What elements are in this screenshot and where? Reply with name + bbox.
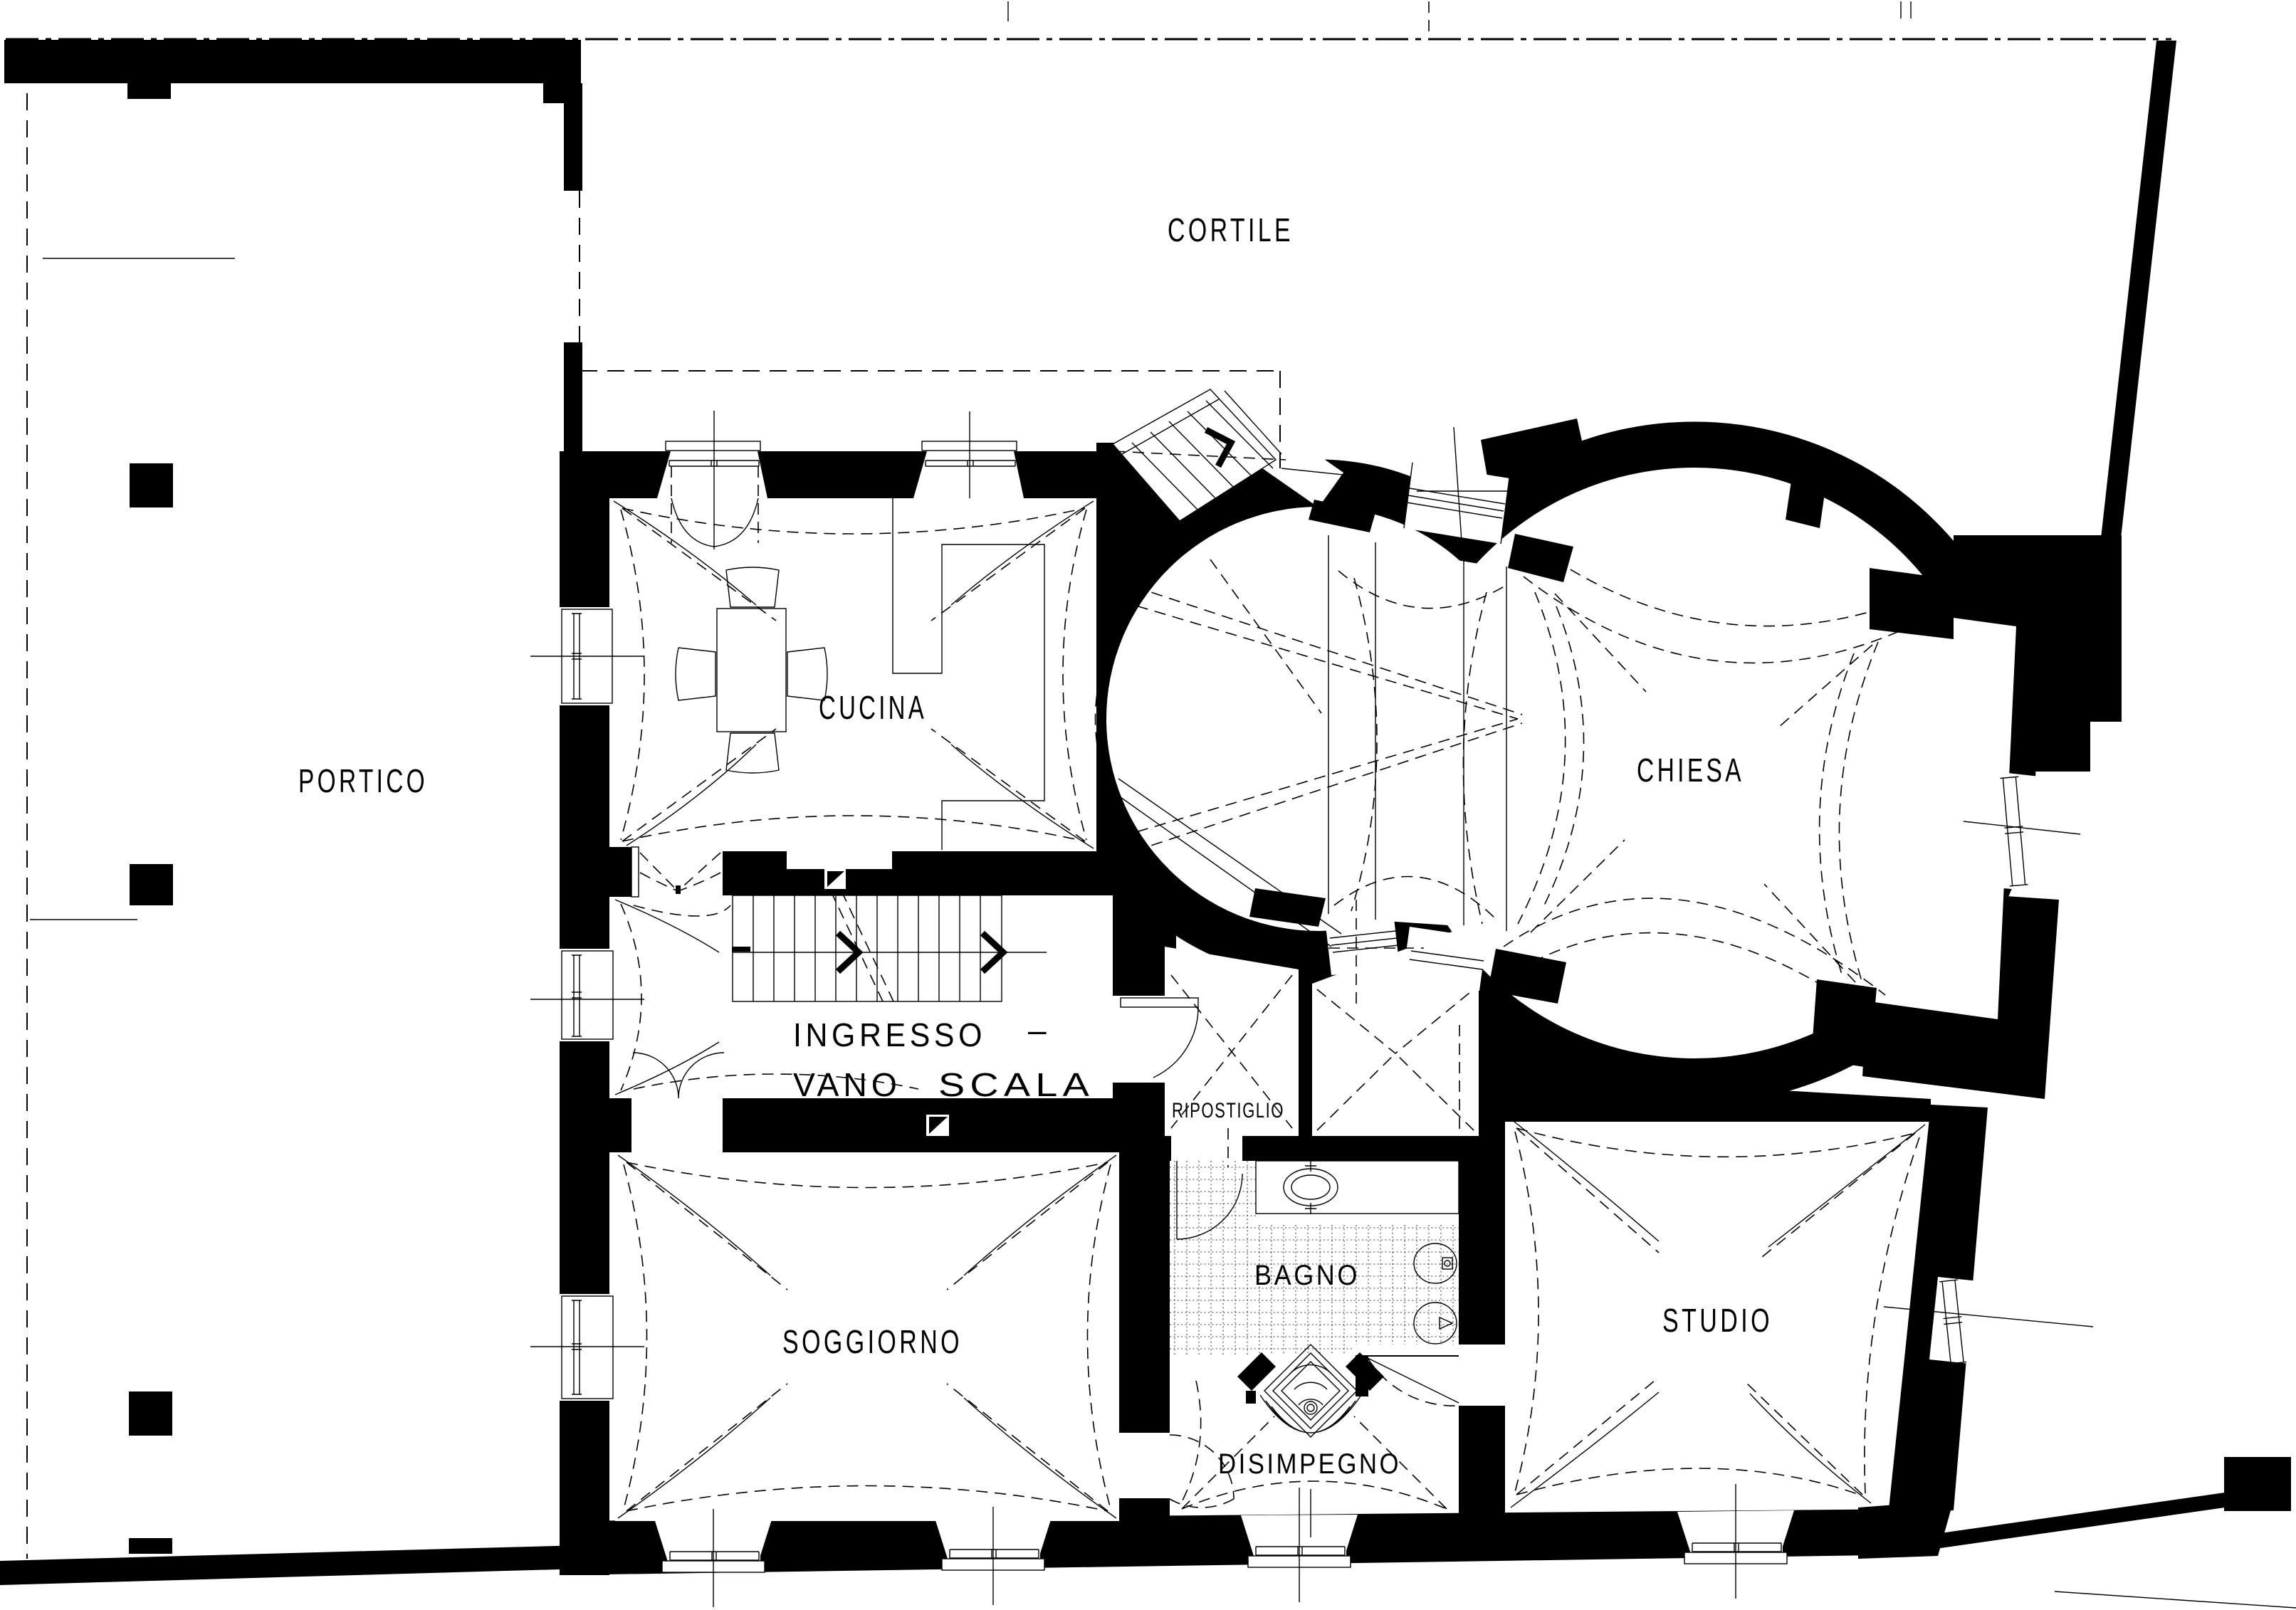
- svg-text:PORTICO: PORTICO: [298, 762, 428, 799]
- svg-text:VANO: VANO: [793, 1066, 901, 1103]
- svg-text:CORTILE: CORTILE: [1168, 211, 1294, 248]
- svg-text:–: –: [1028, 1011, 1051, 1048]
- svg-text:INGRESSO: INGRESSO: [793, 1016, 986, 1053]
- svg-text:BAGNO: BAGNO: [1254, 1260, 1360, 1291]
- svg-text:SCALA: SCALA: [938, 1066, 1094, 1103]
- svg-text:STUDIO: STUDIO: [1662, 1302, 1773, 1339]
- svg-text:SOGGIORNO: SOGGIORNO: [782, 1323, 963, 1360]
- svg-text:CHIESA: CHIESA: [1637, 752, 1744, 789]
- svg-text:DISIMPEGNO: DISIMPEGNO: [1218, 1448, 1401, 1480]
- svg-text:RIPOSTIGLIO: RIPOSTIGLIO: [1172, 1099, 1284, 1122]
- svg-text:CUCINA: CUCINA: [819, 689, 927, 726]
